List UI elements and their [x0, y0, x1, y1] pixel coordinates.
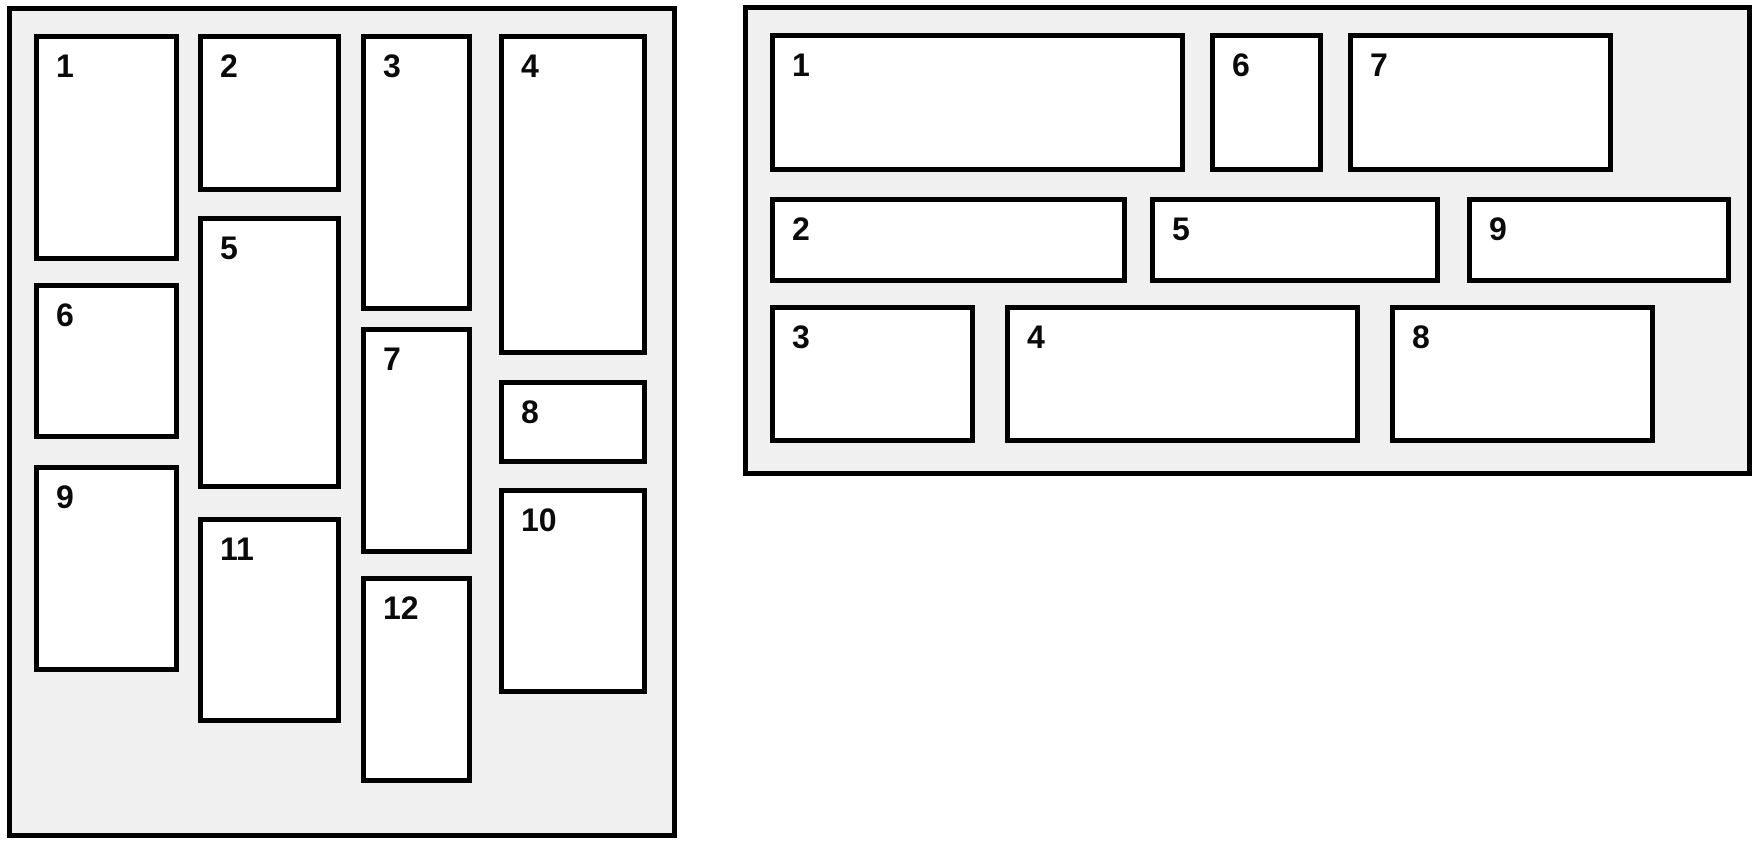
masonry-item-9: 9 [34, 465, 179, 672]
item-number: 1 [775, 38, 1180, 93]
masonry-item-3: 3 [361, 34, 472, 311]
item-number: 3 [775, 310, 970, 365]
item-number: 2 [775, 202, 1122, 257]
item-number: 9 [1472, 202, 1726, 257]
item-number: 5 [203, 221, 336, 276]
flow-item-4: 4 [1005, 305, 1360, 443]
item-number: 6 [39, 288, 174, 343]
masonry-item-8: 8 [499, 380, 647, 464]
item-number: 3 [366, 39, 467, 94]
masonry-item-7: 7 [361, 327, 472, 554]
item-number: 12 [366, 581, 467, 636]
flow-item-5: 5 [1150, 197, 1440, 283]
flow-item-1: 1 [770, 33, 1185, 172]
masonry-item-4: 4 [499, 34, 647, 355]
page-canvas: 123456789101112 123456789 [0, 0, 1755, 852]
flow-item-7: 7 [1348, 33, 1613, 172]
masonry-item-11: 11 [198, 517, 341, 723]
item-number: 4 [1010, 310, 1355, 365]
item-number: 4 [504, 39, 642, 94]
item-number: 7 [1353, 38, 1608, 93]
masonry-item-1: 1 [34, 34, 179, 261]
flow-item-2: 2 [770, 197, 1127, 283]
masonry-item-5: 5 [198, 216, 341, 489]
item-number: 8 [1395, 310, 1650, 365]
flow-item-6: 6 [1210, 33, 1323, 172]
flow-layout-panel: 123456789 [743, 5, 1752, 476]
item-number: 8 [504, 385, 642, 440]
item-number: 9 [39, 470, 174, 525]
masonry-layout-panel: 123456789101112 [7, 6, 677, 838]
masonry-item-12: 12 [361, 576, 472, 783]
masonry-item-10: 10 [499, 488, 647, 694]
item-number: 1 [39, 39, 174, 94]
item-number: 5 [1155, 202, 1435, 257]
flow-item-8: 8 [1390, 305, 1655, 443]
flow-item-3: 3 [770, 305, 975, 443]
item-number: 7 [366, 332, 467, 387]
item-number: 10 [504, 493, 642, 548]
flow-item-9: 9 [1467, 197, 1731, 283]
item-number: 2 [203, 39, 336, 94]
item-number: 11 [203, 522, 336, 577]
item-number: 6 [1215, 38, 1318, 93]
masonry-item-6: 6 [34, 283, 179, 439]
masonry-item-2: 2 [198, 34, 341, 192]
